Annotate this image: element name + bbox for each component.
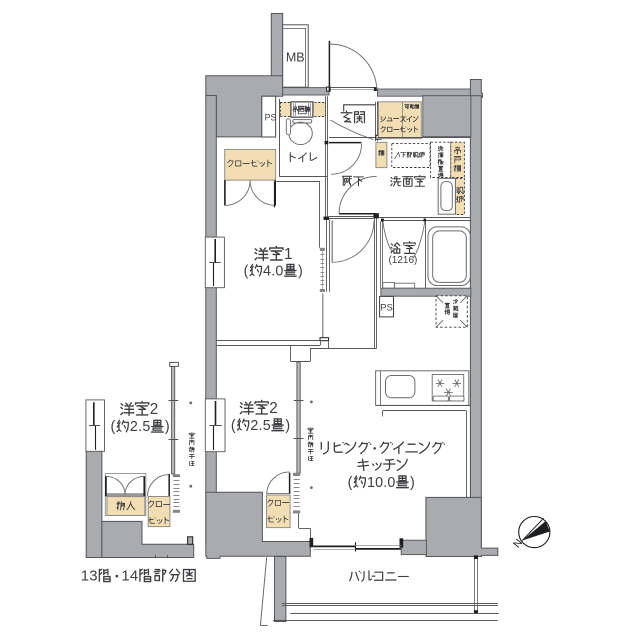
svg-text:5: 5: [142, 419, 150, 435]
svg-text:0: 0: [275, 263, 283, 279]
svg-text:PS: PS: [265, 113, 277, 123]
svg-text:): ): [298, 263, 303, 279]
svg-text:(: (: [111, 419, 116, 435]
svg-text:2: 2: [269, 400, 278, 417]
svg-text:2: 2: [250, 418, 258, 434]
svg-text:(: (: [244, 263, 249, 279]
svg-text:3: 3: [89, 569, 97, 585]
svg-text:(1216): (1216): [388, 255, 417, 266]
svg-text:MB: MB: [286, 51, 305, 65]
svg-text:(: (: [231, 418, 236, 434]
svg-text:4: 4: [263, 263, 271, 279]
svg-text:5: 5: [263, 418, 271, 434]
svg-text:): ): [285, 418, 290, 434]
svg-text:0: 0: [375, 475, 383, 491]
svg-text:): ): [410, 475, 415, 491]
svg-text:2: 2: [130, 419, 138, 435]
svg-text:4: 4: [130, 569, 138, 585]
svg-text:1: 1: [81, 569, 89, 585]
svg-text:1: 1: [121, 569, 129, 585]
svg-text:1: 1: [284, 246, 293, 263]
svg-text:2: 2: [150, 401, 159, 418]
svg-text:): ): [165, 419, 170, 435]
svg-text:PS: PS: [380, 302, 393, 313]
svg-text:0: 0: [387, 475, 395, 491]
svg-text:(: (: [348, 475, 353, 491]
svg-text:1: 1: [367, 475, 375, 491]
